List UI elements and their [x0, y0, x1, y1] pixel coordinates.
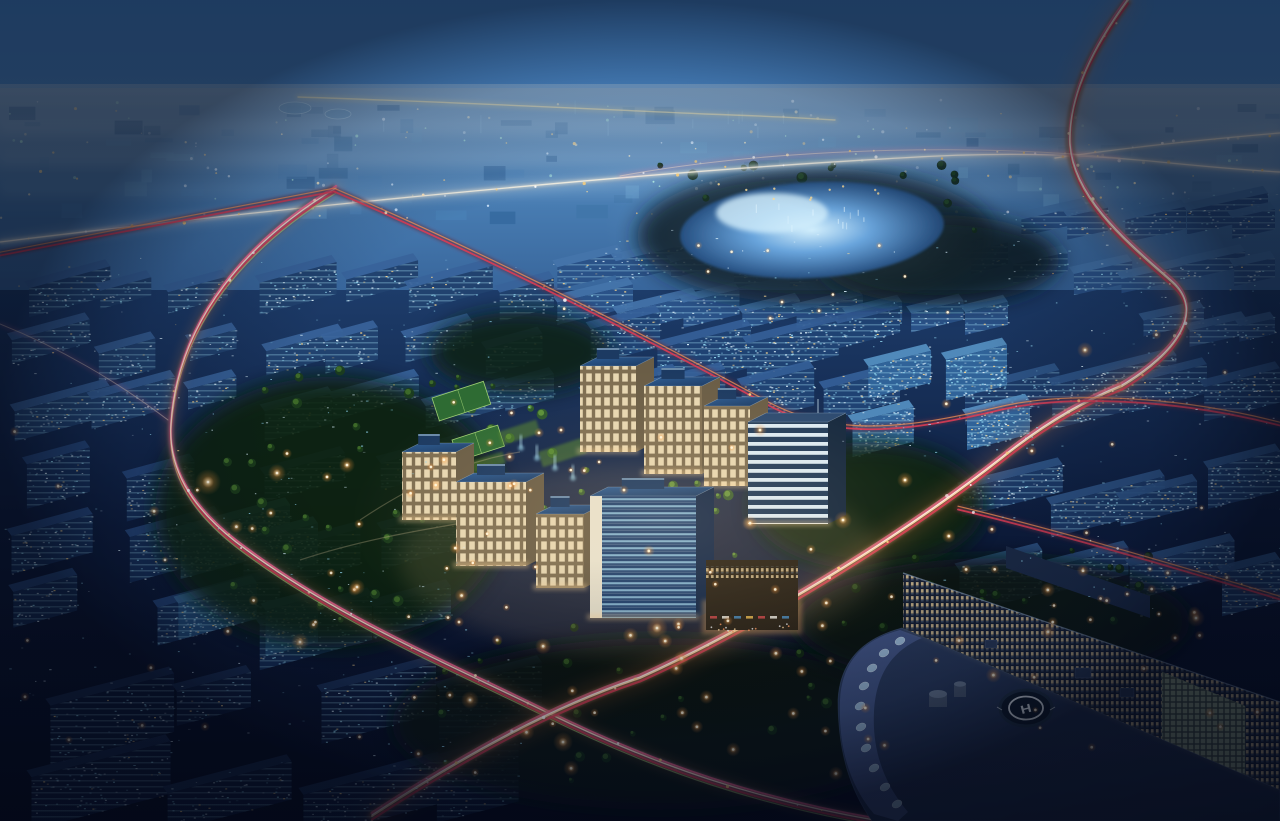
night-city-rendering: H	[0, 0, 1280, 821]
aerial-city-scene: H	[0, 0, 1280, 821]
